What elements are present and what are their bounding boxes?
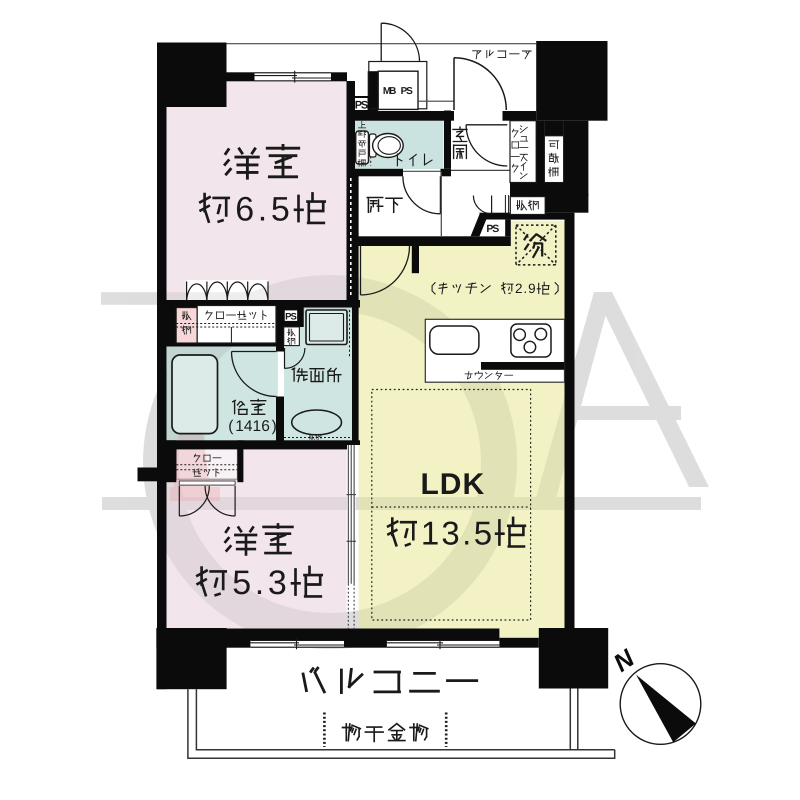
svg-text:3: 3 [268, 564, 287, 602]
svg-text:(: ( [228, 418, 234, 435]
svg-text:9: 9 [528, 281, 536, 296]
svg-text:S: S [492, 223, 499, 235]
svg-text:6: 6 [235, 191, 254, 229]
svg-text:S: S [361, 99, 368, 111]
svg-text:3: 3 [441, 514, 459, 551]
svg-text:1: 1 [252, 418, 261, 435]
svg-text:.: . [255, 564, 264, 602]
svg-text:S: S [406, 86, 413, 97]
svg-text:5: 5 [232, 564, 251, 602]
svg-text:): ) [272, 418, 277, 435]
svg-text:2: 2 [515, 281, 523, 296]
svg-text:.: . [462, 514, 471, 551]
svg-text:.: . [523, 281, 527, 296]
svg-text:5: 5 [474, 514, 492, 551]
svg-text:LDK: LDK [420, 468, 485, 501]
svg-text:S: S [291, 311, 297, 322]
svg-text:1: 1 [421, 514, 439, 551]
svg-text:.: . [258, 191, 267, 229]
svg-text:5: 5 [271, 191, 290, 229]
svg-text:B: B [389, 86, 396, 97]
svg-text:1: 1 [235, 418, 244, 435]
svg-text:6: 6 [261, 418, 270, 435]
